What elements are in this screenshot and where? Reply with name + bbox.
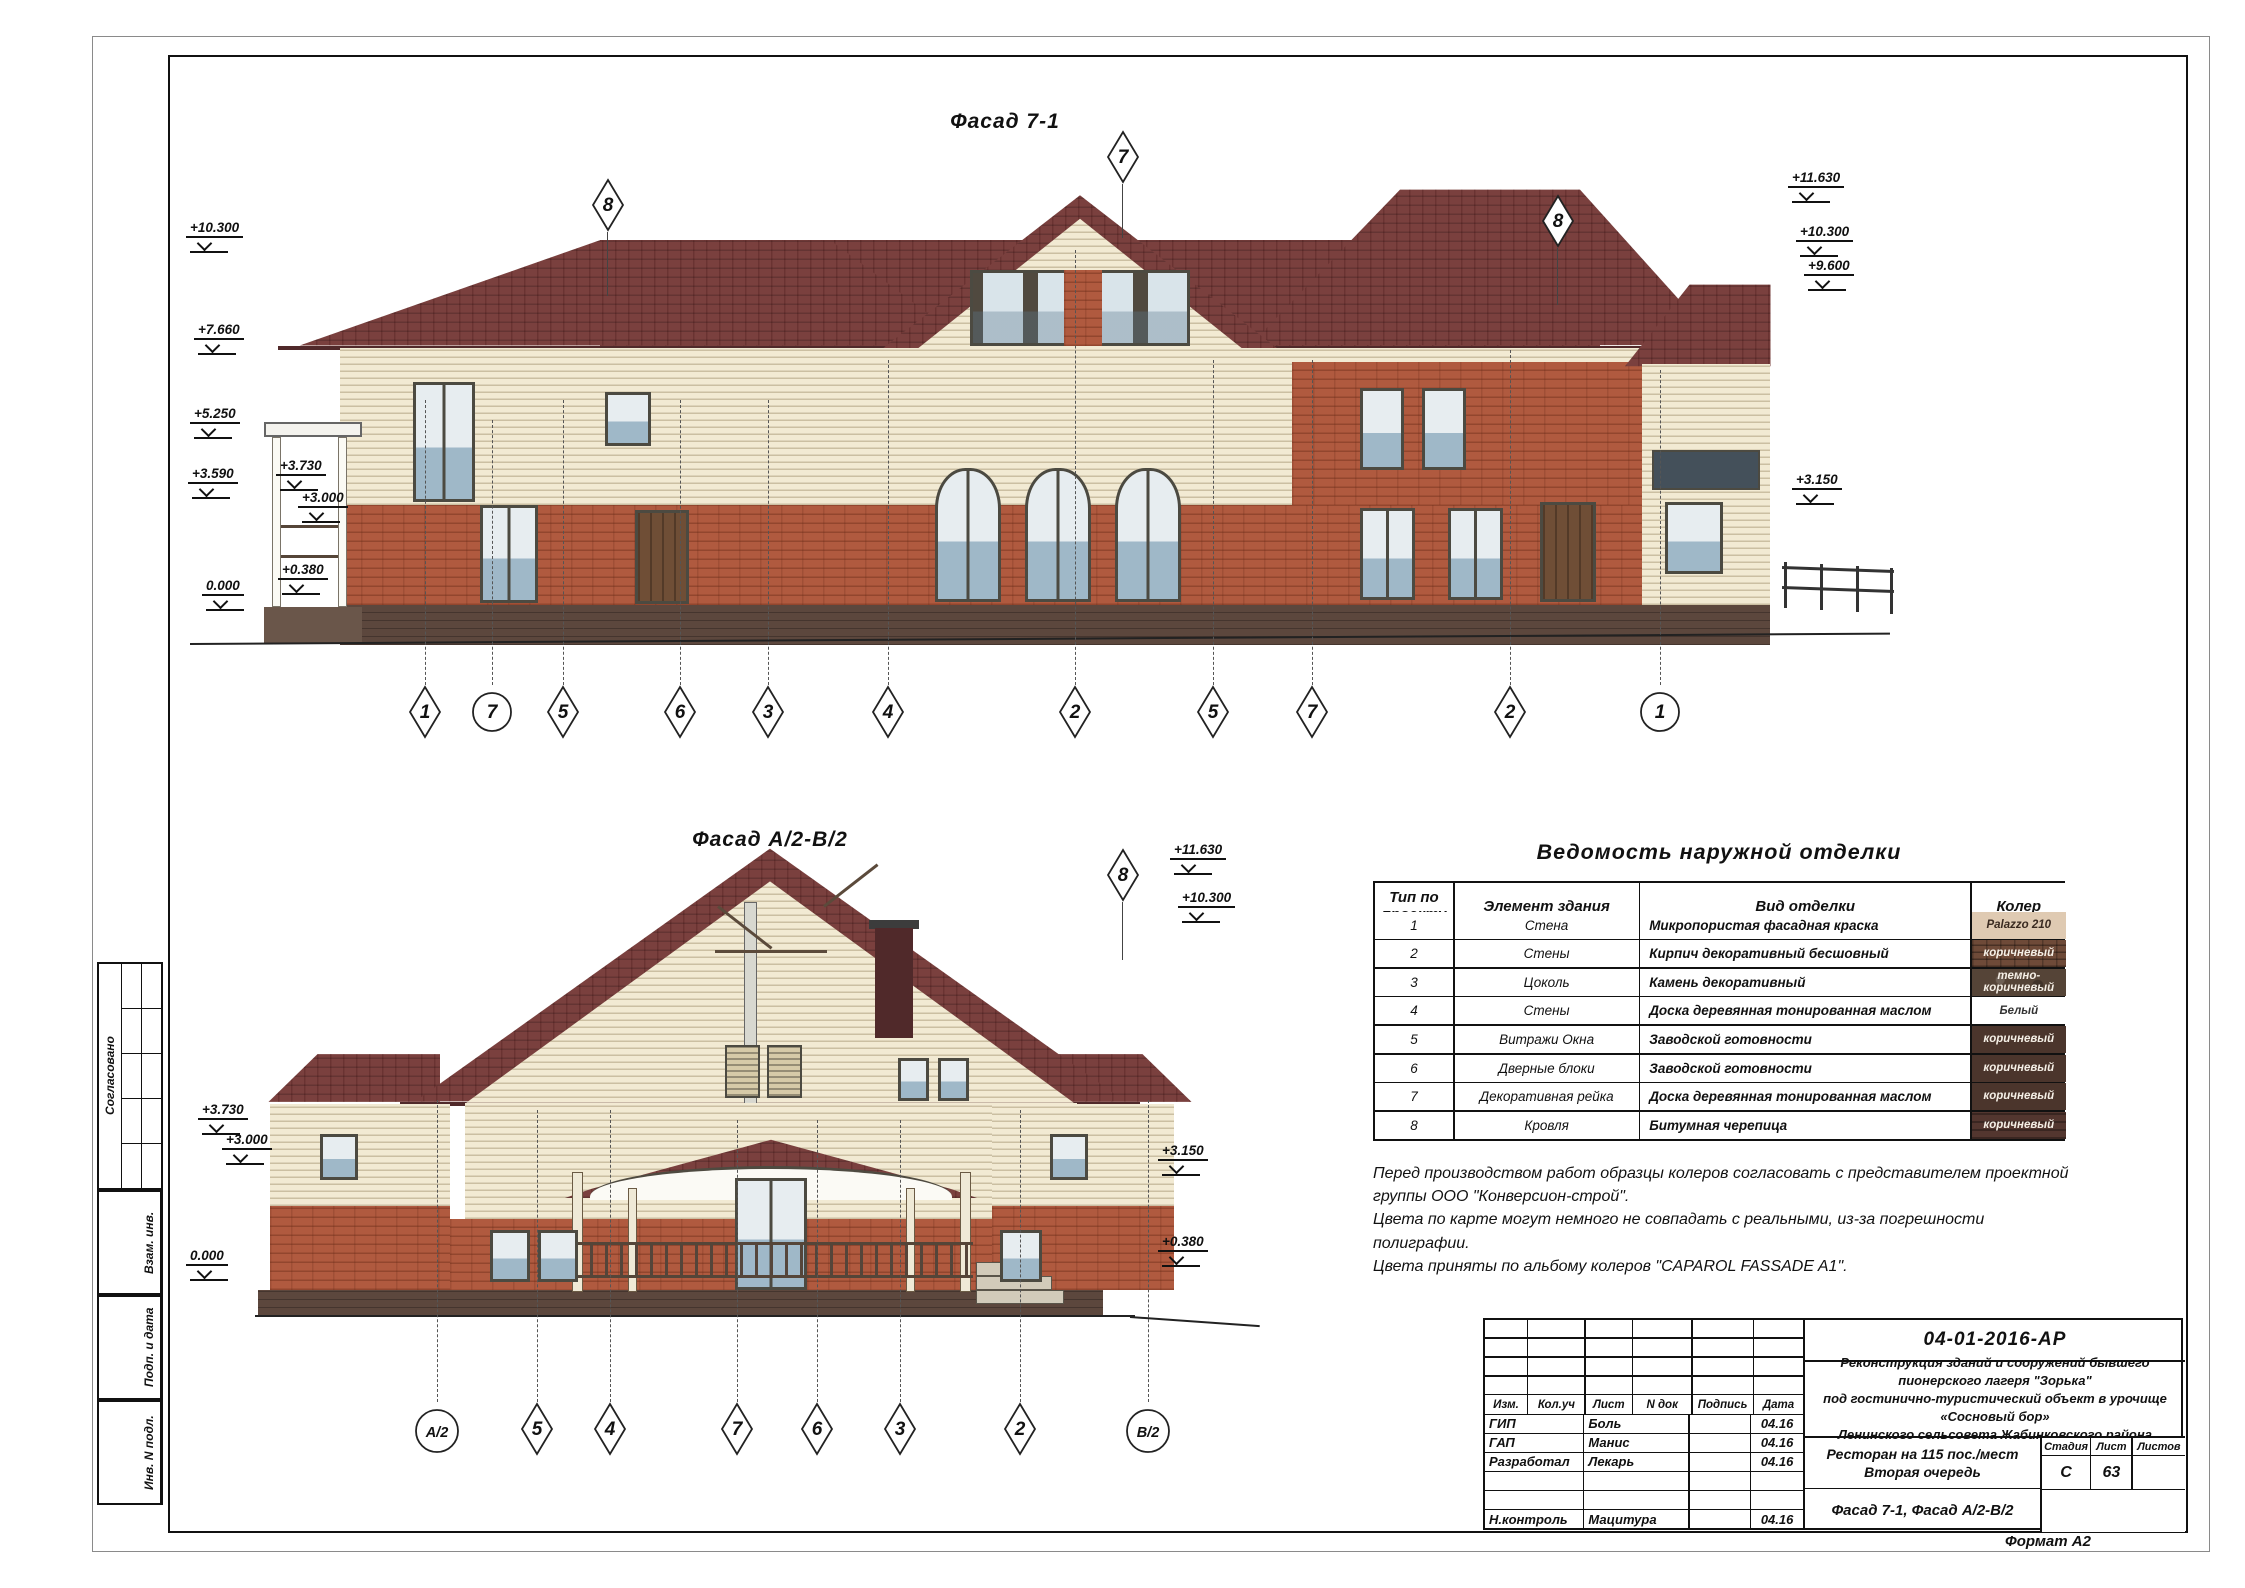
elevation-mark: +3.150: [1792, 472, 1842, 505]
table-cell: 2: [1375, 940, 1453, 967]
axis-marker: 2: [1058, 685, 1092, 744]
elevation-mark: +10.300: [1178, 890, 1235, 923]
svg-text:8: 8: [603, 195, 614, 216]
table-cell: Кирпич декоративный бесшовный: [1640, 940, 1970, 967]
sheet-title: Фасад 7-1, Фасад А/2-В/2: [1805, 1489, 2040, 1532]
annex-glazing-band: [1652, 450, 1760, 490]
strip-box-podp-data: Подп. и дата: [97, 1295, 163, 1400]
axis-marker: 4: [871, 685, 905, 744]
axis-leader: [563, 400, 564, 685]
strip-box-soglasovano: Согласовано: [97, 962, 163, 1190]
axis-leader: [607, 232, 608, 296]
elevation-mark: +10.300: [186, 220, 243, 253]
object-cell: Ресторан на 115 пос./мест Вторая очередь…: [1805, 1438, 2042, 1532]
axis-leader: [1510, 350, 1511, 685]
axis-marker: 8: [1106, 848, 1140, 907]
color-swatch: коричневый: [1972, 1083, 2066, 1110]
elevation-mark: +3.000: [222, 1132, 272, 1165]
color-swatch: Palazzo 210: [1972, 912, 2066, 939]
wing-roof-left: [265, 1052, 440, 1104]
axis-marker: 7: [1295, 685, 1329, 744]
svg-text:7: 7: [732, 1419, 744, 1440]
axis-leader: [888, 360, 889, 685]
table-cell: Камень декоративный: [1640, 969, 1970, 996]
axis-marker: В/2: [1125, 1408, 1171, 1459]
table-cell: Витражи Окна: [1455, 1026, 1639, 1053]
table-cell: 1: [1375, 912, 1453, 939]
axis-leader: [1075, 250, 1076, 685]
strip-label: Взам. инв.: [138, 1192, 161, 1293]
louver-vent: [767, 1045, 802, 1098]
elevation-mark: +3.150: [1158, 1143, 1208, 1176]
axis-leader: [425, 400, 426, 685]
axis-leader: [817, 1120, 818, 1402]
color-swatch: коричневый: [1972, 940, 2066, 967]
window: [898, 1058, 929, 1101]
window: [413, 382, 475, 502]
axis-marker: 2: [1003, 1402, 1037, 1461]
finish-schedule: Ведомость наружной отделки Тип по проект…: [1373, 840, 2065, 1141]
elevation-mark: +3.000: [298, 490, 348, 523]
color-swatch: коричневый: [1972, 1055, 2066, 1082]
revision-header: Изм. Кол.уч Лист N док Подпись Дата: [1485, 1395, 1803, 1415]
strip-label: Инв. N подл.: [138, 1402, 161, 1503]
svg-text:В/2: В/2: [1137, 1425, 1160, 1441]
table-cell: Стена: [1455, 912, 1639, 939]
table-cell: 5: [1375, 1026, 1453, 1053]
svg-text:2: 2: [1069, 702, 1081, 723]
axis-marker: 5: [1196, 685, 1230, 744]
svg-text:7: 7: [487, 702, 499, 723]
elevation-mark: +0.380: [1158, 1234, 1208, 1267]
facade-title: Фасад А/2-В/2: [610, 828, 930, 852]
note-line: группы ООО "Конверсион-строй".: [1373, 1185, 2083, 1208]
table-cell: 8: [1375, 1112, 1453, 1139]
window: [938, 1058, 969, 1101]
elevation-mark: +7.660: [194, 322, 244, 355]
axis-leader: [737, 1120, 738, 1402]
svg-text:7: 7: [1118, 147, 1130, 168]
note-line: Цвета по карте могут немного не совпадат…: [1373, 1208, 2083, 1254]
porch-rail: [281, 555, 338, 558]
ramp-post: [1820, 564, 1823, 610]
table-cell: 3: [1375, 969, 1453, 996]
ground-line: [255, 1315, 1135, 1317]
drawing-sheet: Согласовано Взам. инв. Подп. и дата Инв.…: [0, 0, 2245, 1588]
svg-text:6: 6: [675, 702, 686, 723]
elevation-mark: +10.300: [1796, 224, 1853, 257]
notes: Перед производством работ образцы колеро…: [1373, 1162, 2083, 1278]
chimney: [875, 928, 913, 1038]
axis-marker: 8: [591, 178, 625, 237]
svg-text:2: 2: [1504, 702, 1516, 723]
axis-marker: 2: [1493, 685, 1527, 744]
svg-text:2: 2: [1014, 1419, 1026, 1440]
gable-brick-pier: [1064, 270, 1102, 346]
table-cell: Заводской готовности: [1640, 1055, 1970, 1082]
facade-a2-b2-view: Фасад А/2-В/2: [170, 810, 1290, 1510]
object-name: Ресторан на 115 пос./мест Вторая очередь: [1805, 1438, 2040, 1489]
sheet-number: 63: [2091, 1456, 2131, 1489]
elevation-mark: +3.590: [188, 466, 238, 499]
axis-leader: [1660, 370, 1661, 685]
window: [480, 505, 538, 603]
axis-marker: 4: [593, 1402, 627, 1461]
elevation-mark: +5.250: [190, 406, 240, 439]
svg-text:3: 3: [895, 1419, 906, 1440]
table-cell: Микропористая фасадная краска: [1640, 912, 1970, 939]
elevation-mark: 0.000: [186, 1248, 228, 1281]
table-cell: Заводской готовности: [1640, 1026, 1970, 1053]
ramp-rail: [1782, 586, 1894, 592]
window: [1050, 1134, 1088, 1180]
axis-leader: [437, 1100, 438, 1402]
elevation-mark: +9.600: [1804, 258, 1854, 291]
axis-marker: 5: [546, 685, 580, 744]
porch-rail: [281, 525, 338, 528]
finish-schedule-table: Тип по проекту Элемент здания Вид отделк…: [1373, 881, 2065, 1141]
table-cell: Доска деревянная тонированная маслом: [1640, 997, 1970, 1024]
table-cell: 6: [1375, 1055, 1453, 1082]
ramp-post: [1856, 566, 1859, 612]
svg-text:5: 5: [558, 702, 569, 723]
porch-base: [264, 607, 362, 643]
window: [1422, 388, 1466, 470]
porch-rail: [575, 1275, 973, 1278]
strip-grid: [122, 964, 161, 1188]
strip-box-inv-podl: Инв. N подл.: [97, 1400, 163, 1505]
color-swatch: коричневый: [1972, 1026, 2066, 1053]
axis-leader: [1020, 1110, 1021, 1402]
balusters: [575, 1245, 973, 1275]
svg-text:А/2: А/2: [425, 1425, 449, 1441]
porch-roof-slab: [264, 422, 362, 437]
table-cell: 7: [1375, 1083, 1453, 1110]
table-cell: Кровля: [1455, 1112, 1639, 1139]
svg-text:5: 5: [532, 1419, 543, 1440]
axis-marker: 1: [1639, 691, 1681, 738]
wing-wall-siding-left: [270, 1104, 450, 1206]
axis-leader: [1148, 1100, 1149, 1402]
axis-leader: [1122, 902, 1123, 960]
axis-marker: 6: [663, 685, 697, 744]
svg-text:1: 1: [1655, 702, 1666, 723]
axis-marker: А/2: [414, 1408, 460, 1459]
axis-leader: [1312, 360, 1313, 685]
finish-schedule-title: Ведомость наружной отделки: [1373, 840, 2065, 865]
axis-marker: 5: [520, 1402, 554, 1461]
note-line: Цвета приняты по альбому колеров "CAPARO…: [1373, 1255, 2083, 1278]
window: [1448, 508, 1503, 600]
axis-marker: 3: [751, 685, 785, 744]
elevation-mark: +11.630: [1788, 170, 1844, 203]
svg-text:8: 8: [1118, 865, 1129, 886]
axis-leader: [900, 1120, 901, 1402]
title-block: Изм. Кол.уч Лист N док Подпись Дата ГИПБ…: [1483, 1318, 2183, 1530]
elevation-mark: +0.380: [278, 562, 328, 595]
elevation-mark: +11.630: [1170, 842, 1226, 875]
axis-leader: [1213, 360, 1214, 685]
svg-text:3: 3: [763, 702, 774, 723]
svg-text:5: 5: [1208, 702, 1219, 723]
ramp-post: [1890, 568, 1893, 614]
stage-cell: Стадия Лист Листов С 63: [2042, 1438, 2185, 1532]
facade-7-1-view: Фасад 7-1: [180, 100, 1900, 775]
axis-leader: [768, 400, 769, 685]
ground-slope: [1130, 1316, 1260, 1327]
truss-tie: [715, 950, 827, 953]
signature-rows: ГИПБоль04.16 ГАПМанис04.16 РазработалЛек…: [1485, 1415, 1803, 1528]
arched-window: [935, 468, 1001, 602]
format-label: Формат А2: [2005, 1533, 2091, 1550]
strip-box-vzam-inv: Взам. инв.: [97, 1190, 163, 1295]
table-cell: Цоколь: [1455, 969, 1639, 996]
elevation-mark: +3.730: [276, 458, 326, 491]
revision-grid: [1485, 1320, 1803, 1395]
table-cell: Декоративная рейка: [1455, 1083, 1639, 1110]
axis-leader: [537, 1110, 538, 1402]
table-cell: Битумная черепица: [1640, 1112, 1970, 1139]
window: [1000, 1230, 1042, 1282]
project-description: Реконструкция зданий и сооружений бывшег…: [1805, 1362, 2185, 1438]
window: [1360, 508, 1415, 600]
window: [1360, 388, 1404, 470]
svg-text:4: 4: [882, 702, 894, 723]
strip-label: Подп. и дата: [138, 1297, 161, 1398]
table-cell: Дверные блоки: [1455, 1055, 1639, 1082]
axis-marker: 1: [408, 685, 442, 744]
color-swatch: коричневый: [1972, 1112, 2066, 1139]
elevation-mark: 0.000: [202, 578, 244, 611]
svg-text:1: 1: [420, 702, 431, 723]
entrance-door: [1540, 502, 1596, 602]
svg-text:4: 4: [604, 1419, 616, 1440]
axis-marker: 7: [1106, 130, 1140, 189]
axis-marker: 7: [471, 691, 513, 738]
note-line: Перед производством работ образцы колеро…: [1373, 1162, 2083, 1185]
axis-leader: [1122, 184, 1123, 238]
window: [605, 392, 651, 446]
window: [1665, 502, 1723, 574]
truss-brace: [823, 863, 878, 907]
louver-vent: [725, 1045, 760, 1098]
axis-marker: 8: [1541, 194, 1575, 253]
axis-marker: 6: [800, 1402, 834, 1461]
stage-value: С: [2042, 1456, 2090, 1489]
svg-text:8: 8: [1553, 211, 1564, 232]
axis-marker: 3: [883, 1402, 917, 1461]
ramp-post: [1784, 562, 1787, 608]
wing-wall-brick-left: [270, 1206, 450, 1290]
title-block-revisions: Изм. Кол.уч Лист N док Подпись Дата ГИПБ…: [1485, 1320, 1805, 1528]
table-cell: 4: [1375, 997, 1453, 1024]
sheets-total: [2133, 1456, 2185, 1489]
window: [320, 1134, 358, 1180]
axis-leader: [492, 420, 493, 685]
table-cell: Стены: [1455, 997, 1639, 1024]
window: [490, 1230, 530, 1282]
window: [538, 1230, 578, 1282]
axis-leader: [610, 1110, 611, 1402]
elevation-mark: +3.730: [198, 1102, 248, 1135]
axis-leader: [680, 400, 681, 685]
arched-window: [1025, 468, 1091, 602]
arched-window: [1115, 468, 1181, 602]
table-cell: Стены: [1455, 940, 1639, 967]
axis-leader: [1557, 248, 1558, 305]
ramp-rail: [1782, 566, 1894, 572]
svg-text:7: 7: [1307, 702, 1319, 723]
color-swatch: Белый: [1972, 997, 2066, 1024]
strip-label: Согласовано: [99, 964, 122, 1188]
color-swatch: темно-коричневый: [1972, 969, 2066, 996]
axis-marker: 7: [720, 1402, 754, 1461]
svg-text:6: 6: [812, 1419, 823, 1440]
table-cell: Доска деревянная тонированная маслом: [1640, 1083, 1970, 1110]
